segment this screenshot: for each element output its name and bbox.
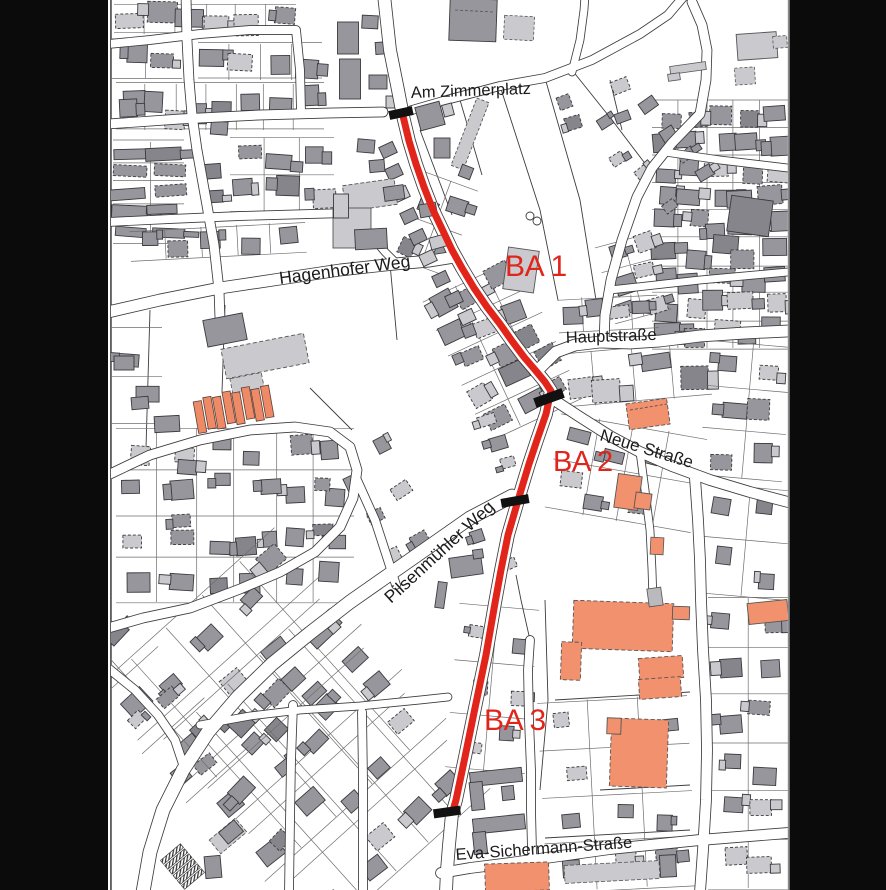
svg-text:BA 1: BA 1	[505, 250, 567, 283]
svg-text:BA 3: BA 3	[484, 704, 546, 737]
svg-text:BA 2: BA 2	[553, 446, 613, 478]
svg-text:Hauptstraße: Hauptstraße	[566, 326, 657, 347]
